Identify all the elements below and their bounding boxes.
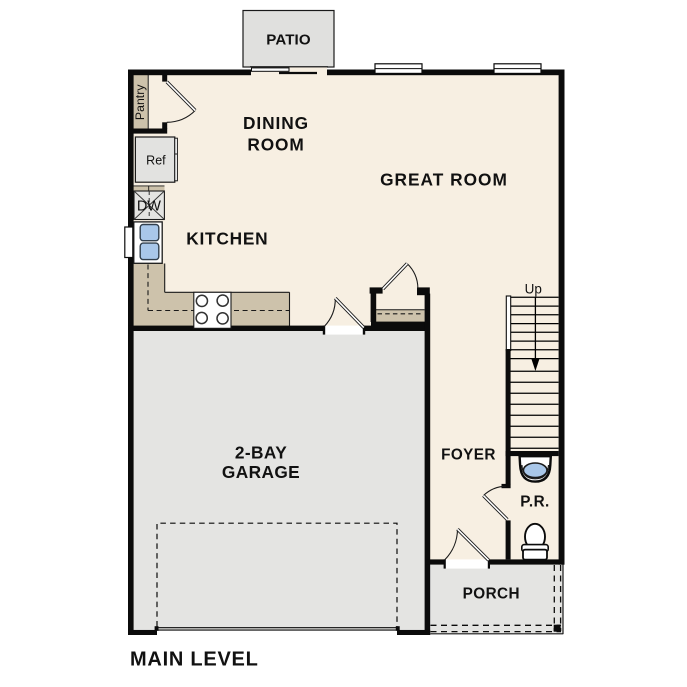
svg-text:FOYER: FOYER	[441, 446, 496, 463]
svg-text:PATIO: PATIO	[266, 31, 311, 48]
svg-text:GREAT ROOM: GREAT ROOM	[380, 169, 508, 189]
svg-text:P.R.: P.R.	[520, 494, 549, 511]
svg-text:Up: Up	[525, 282, 542, 297]
svg-text:DW: DW	[137, 198, 161, 214]
svg-text:Ref: Ref	[146, 153, 166, 167]
svg-text:ROOM: ROOM	[247, 134, 304, 154]
svg-text:GARAGE: GARAGE	[222, 462, 300, 482]
svg-text:2-BAY: 2-BAY	[235, 443, 287, 463]
svg-text:PORCH: PORCH	[463, 586, 520, 603]
svg-text:KITCHEN: KITCHEN	[186, 229, 268, 249]
svg-text:MAIN LEVEL: MAIN LEVEL	[130, 649, 259, 671]
svg-text:Pantry: Pantry	[133, 84, 147, 120]
svg-text:DINING: DINING	[243, 113, 309, 133]
